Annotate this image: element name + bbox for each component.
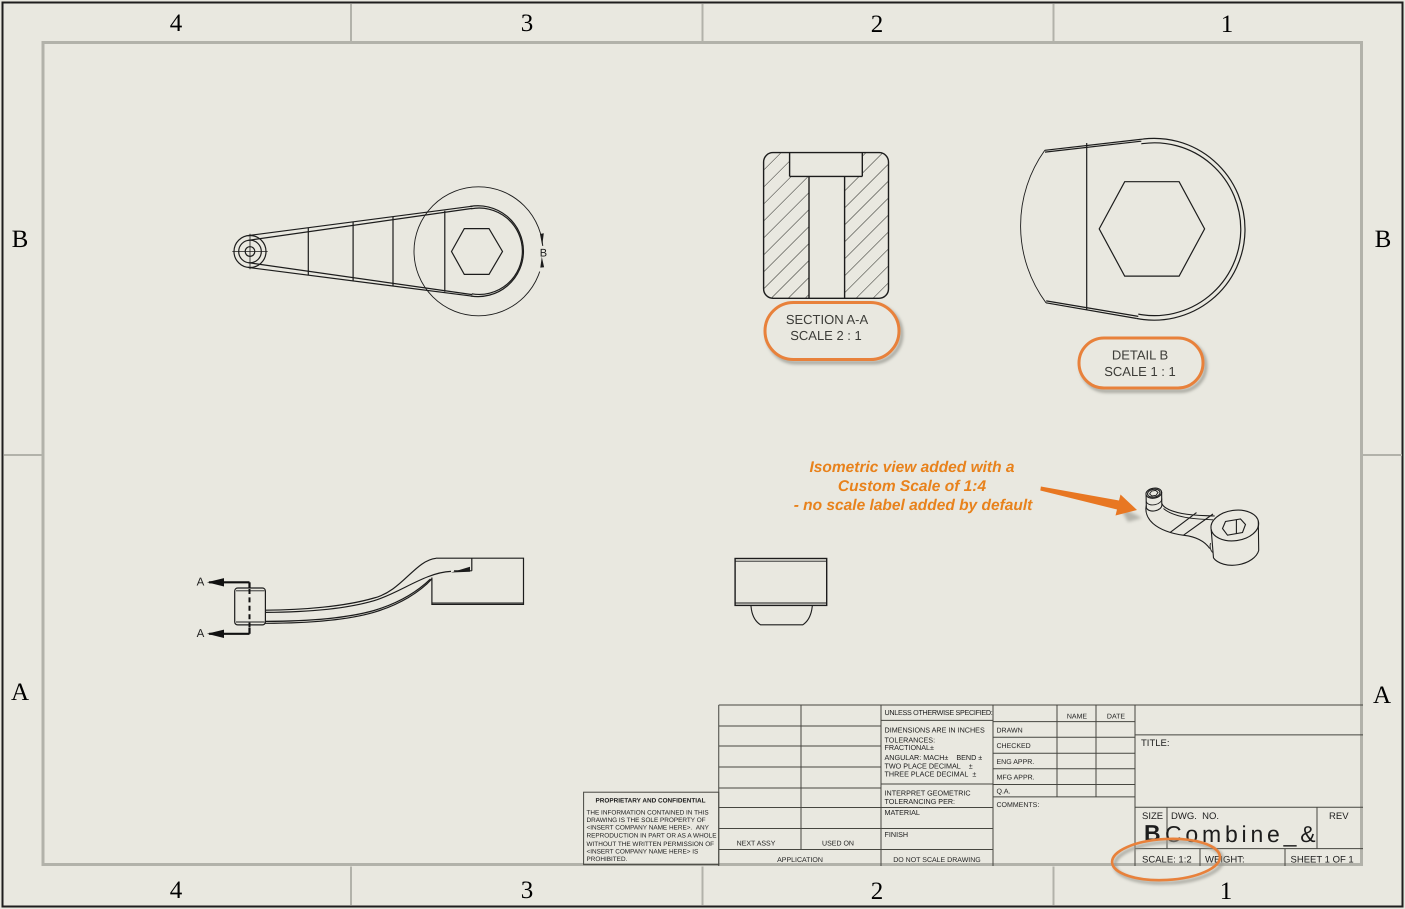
svg-text:UNLESS OTHERWISE SPECIFIED:: UNLESS OTHERWISE SPECIFIED: (885, 708, 993, 717)
svg-text:NEXT ASSY: NEXT ASSY (737, 841, 776, 848)
svg-text:4: 4 (170, 877, 183, 904)
svg-text:Custom Scale of 1:4: Custom Scale of 1:4 (838, 478, 987, 495)
svg-text:SHEET 1 OF 1: SHEET 1 OF 1 (1291, 855, 1354, 866)
svg-text:FRACTIONAL±: FRACTIONAL± (885, 743, 935, 752)
svg-text:2: 2 (871, 11, 884, 38)
svg-text:ENG APPR.: ENG APPR. (997, 759, 1035, 766)
svg-text:WITHOUT THE WRITTEN PERMISSION: WITHOUT THE WRITTEN PERMISSION OF (587, 841, 715, 848)
svg-text:SCALE 2 : 1: SCALE 2 : 1 (790, 328, 862, 343)
svg-text:THE INFORMATION CONTAINED IN T: THE INFORMATION CONTAINED IN THIS (587, 810, 709, 817)
svg-text:1: 1 (1221, 11, 1234, 38)
svg-text:DATE: DATE (1107, 714, 1125, 721)
svg-text:WEIGHT:: WEIGHT: (1205, 855, 1245, 866)
svg-text:SECTION A-A: SECTION A-A (786, 312, 869, 327)
svg-text:SCALE 1 : 1: SCALE 1 : 1 (1104, 364, 1176, 379)
svg-text:Isometric view added with a: Isometric view added with a (809, 459, 1014, 476)
svg-text:B: B (1375, 226, 1392, 253)
svg-text:DIMENSIONS ARE IN INCHES: DIMENSIONS ARE IN INCHES (885, 726, 985, 735)
svg-text:SCALE: 1:2: SCALE: 1:2 (1142, 855, 1192, 866)
svg-text:APPLICATION: APPLICATION (777, 857, 823, 864)
svg-text:DRAWN: DRAWN (997, 727, 1023, 734)
svg-text:INTERPRET GEOMETRIC: INTERPRET GEOMETRIC (885, 788, 971, 797)
svg-text:MATERIAL: MATERIAL (885, 808, 920, 817)
svg-text:REV: REV (1329, 811, 1349, 822)
svg-text:CHECKED: CHECKED (997, 743, 1031, 750)
svg-text:3: 3 (521, 10, 534, 37)
svg-text:MFG APPR.: MFG APPR. (997, 775, 1035, 782)
svg-text:DRAWING IS THE SOLE PROPERTY O: DRAWING IS THE SOLE PROPERTY OF (587, 817, 706, 824)
svg-text:2: 2 (871, 878, 884, 905)
svg-text:REPRODUCTION IN PART OR AS A W: REPRODUCTION IN PART OR AS A WHOLE (587, 833, 717, 840)
svg-text:DETAIL B: DETAIL B (1112, 348, 1168, 363)
svg-text:USED ON: USED ON (822, 841, 854, 848)
svg-text:- no scale label added by defa: - no scale label added by default (794, 497, 1033, 514)
svg-text:<INSERT COMPANY NAME HERE> IS: <INSERT COMPANY NAME HERE> IS (587, 848, 699, 855)
svg-text:A: A (1373, 682, 1391, 709)
svg-text:FINISH: FINISH (885, 830, 909, 839)
svg-text:A: A (197, 577, 205, 589)
svg-text:3: 3 (521, 877, 534, 904)
svg-text:<INSERT COMPANY NAME HERE>. A: <INSERT COMPANY NAME HERE>. ANY (587, 824, 710, 831)
svg-text:NAME: NAME (1067, 714, 1088, 721)
svg-text:COMMENTS:: COMMENTS: (997, 802, 1040, 809)
svg-text:A: A (11, 679, 29, 706)
svg-text:1: 1 (1220, 878, 1233, 905)
svg-text:Q.A.: Q.A. (997, 789, 1011, 796)
svg-text:B: B (12, 226, 29, 253)
svg-text:PROPRIETARY AND CONFIDENTIAL: PROPRIETARY AND CONFIDENTIAL (595, 798, 705, 805)
svg-text:4: 4 (170, 10, 183, 37)
svg-text:ANGULAR: MACH± BEND ±: ANGULAR: MACH± BEND ± (885, 753, 983, 762)
svg-text:PROHIBITED.: PROHIBITED. (587, 856, 628, 863)
svg-text:THREE PLACE DECIMAL ±: THREE PLACE DECIMAL ± (885, 770, 977, 779)
svg-text:DO NOT SCALE DRAWING: DO NOT SCALE DRAWING (893, 857, 981, 864)
svg-text:TOLERANCING PER:: TOLERANCING PER: (885, 797, 956, 806)
svg-text:TITLE:: TITLE: (1141, 738, 1170, 749)
svg-text:A: A (197, 628, 205, 640)
svg-text:B: B (540, 248, 547, 260)
